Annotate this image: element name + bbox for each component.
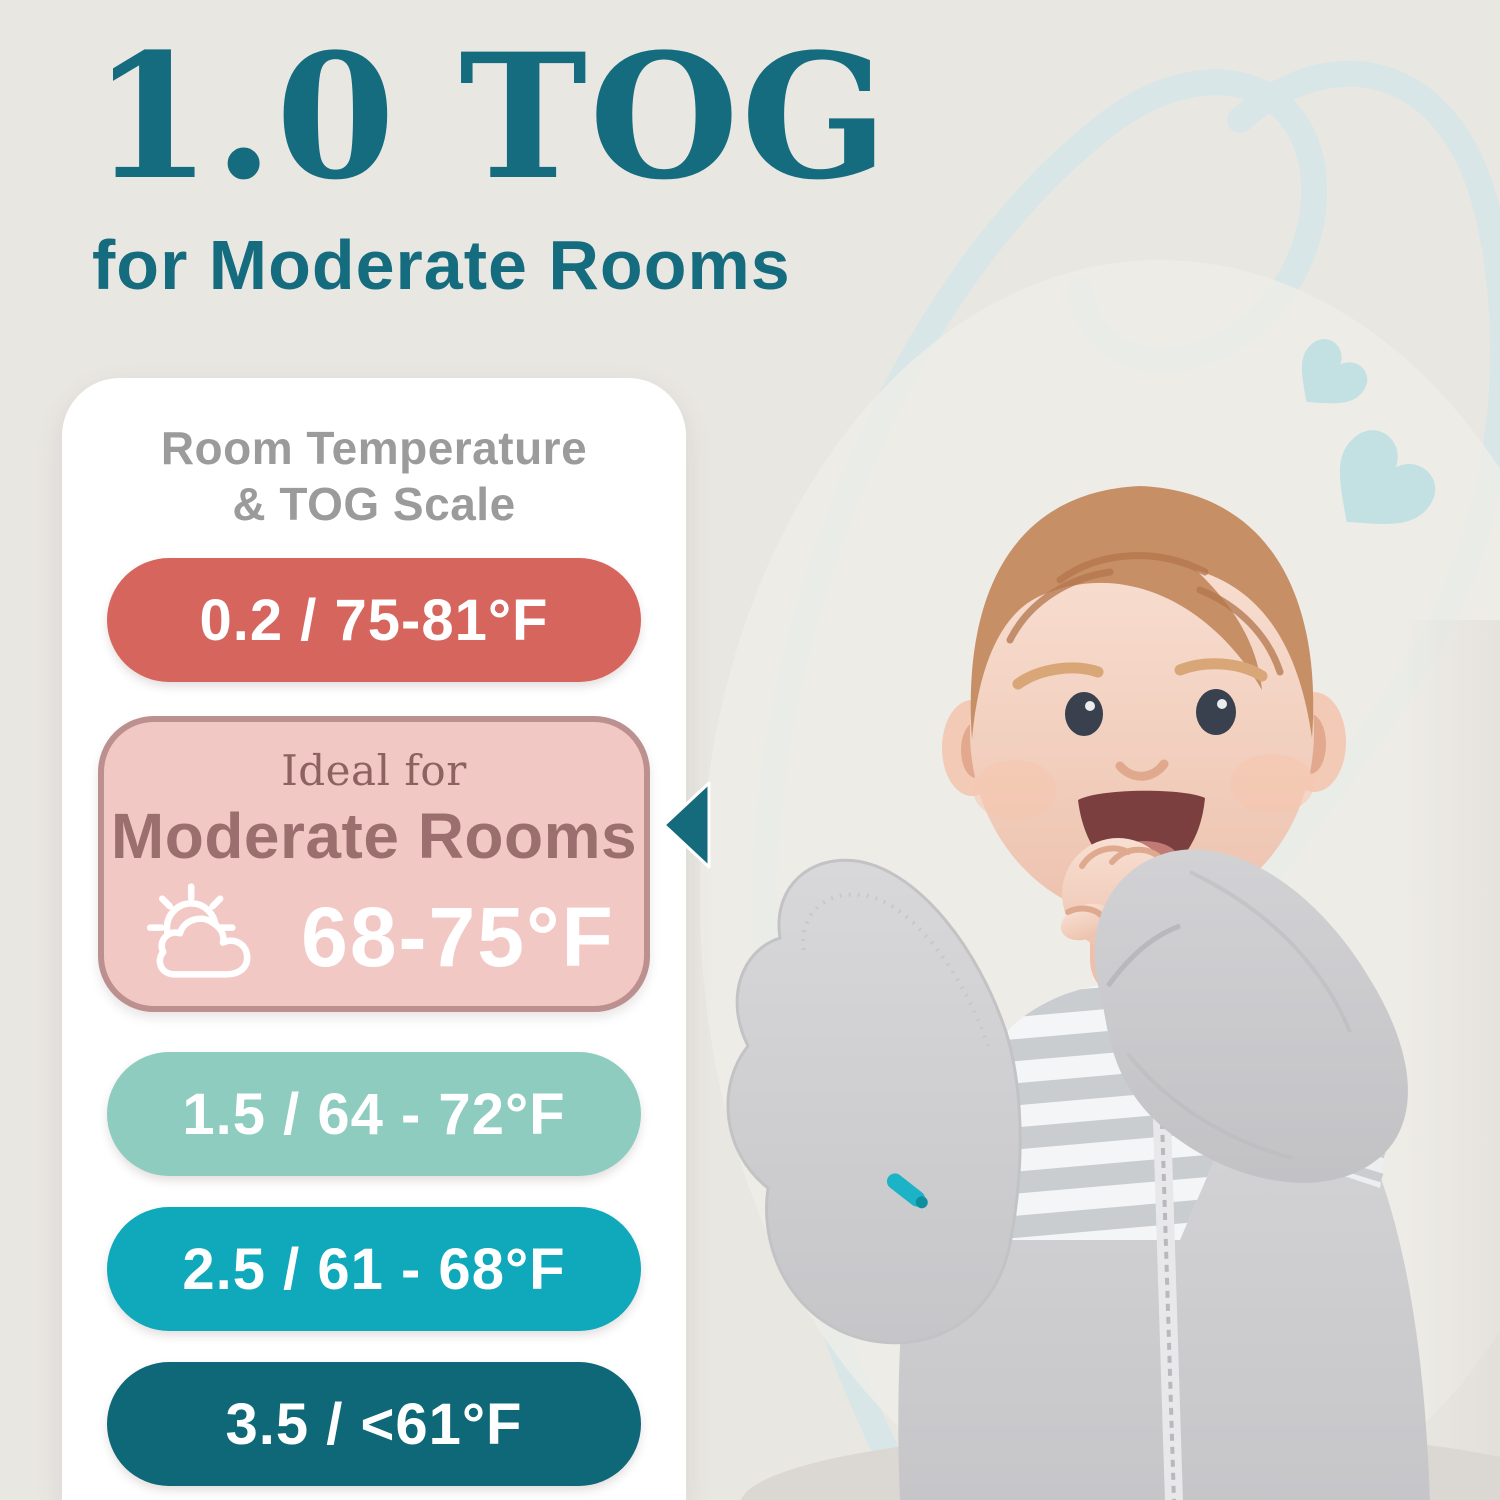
- page-title: 1.0 TOG: [92, 16, 890, 219]
- tog-row-2-5: 2.5 / 61 - 68°F: [107, 1207, 641, 1331]
- ideal-for-label: Ideal for: [281, 746, 467, 795]
- baby-cheek-left: [973, 760, 1057, 820]
- page-subtitle: for Moderate Rooms: [92, 225, 890, 305]
- tog-row-3-5-label: 3.5 / <61°F: [226, 1391, 523, 1458]
- tog-row-1-5: 1.5 / 64 - 72°F: [107, 1052, 641, 1176]
- title-block: 1.0 TOG for Moderate Rooms: [92, 16, 890, 305]
- tog-row-3-5: 3.5 / <61°F: [107, 1362, 641, 1486]
- tog-row-0-2: 0.2 / 75-81°F: [107, 558, 641, 682]
- sun-cloud-icon: [133, 881, 283, 993]
- baby-cheek-right: [1230, 754, 1314, 814]
- tog-row-1-5-label: 1.5 / 64 - 72°F: [182, 1081, 565, 1148]
- temp-value: 68-75°F: [301, 889, 615, 986]
- card-heading-line1: Room Temperature: [161, 420, 587, 476]
- tog-row-2-5-label: 2.5 / 61 - 68°F: [182, 1236, 565, 1303]
- temp-row: 68-75°F: [133, 881, 615, 993]
- triangle-left-icon: [660, 779, 712, 871]
- card-heading: Room Temperature & TOG Scale: [161, 420, 587, 532]
- tog-row-1-0-highlight: Ideal for Moderate Rooms 68-75°F: [98, 716, 650, 1012]
- tog-row-0-2-label: 0.2 / 75-81°F: [200, 587, 549, 654]
- card-heading-line2: & TOG Scale: [161, 476, 587, 532]
- tog-scale-card: Room Temperature & TOG Scale 0.2 / 75-81…: [62, 378, 686, 1500]
- infographic-canvas: 1.0 TOG for Moderate Rooms Room Temperat…: [0, 0, 1500, 1500]
- moderate-rooms-label: Moderate Rooms: [111, 799, 637, 873]
